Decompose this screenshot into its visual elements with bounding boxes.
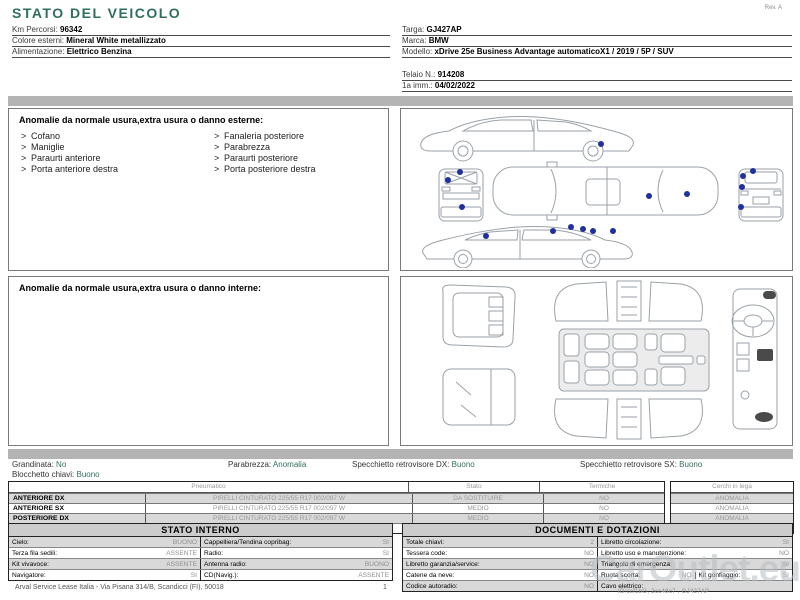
trunk-open-view <box>443 285 515 347</box>
field-value: ASSENTE <box>166 561 197 568</box>
exterior-diagram-panel <box>400 108 793 271</box>
col-termiche: Termiche <box>539 482 664 493</box>
list-item: >Maniglie <box>21 142 118 153</box>
info-prima-imm-label: 1a imm.: <box>402 81 433 90</box>
field-label: Codice autoradio: <box>406 583 458 590</box>
info-telaio-value: 914208 <box>438 70 465 79</box>
summary-label: Specchietto retrovisore SX: <box>580 460 677 469</box>
tyre-position: POSTERIORE DX <box>9 514 145 523</box>
tyre-stato: DA SOSTITUIRE <box>412 494 543 503</box>
anomaly-label: Paraurti anteriore <box>31 153 101 163</box>
info-marca: Marca: BMW <box>402 36 792 47</box>
dashboard-view <box>732 289 777 429</box>
field-label: CD(Navig.): <box>204 572 238 579</box>
tyre-description: PIRELLI CINTURATO 225/55 R17 002/097 W <box>145 504 412 513</box>
info-modello-label: Modello: <box>402 47 432 56</box>
info-targa: Targa: GJ427AP <box>402 25 792 36</box>
tyre-table-header: Pneumatico Stato Termiche <box>9 482 664 493</box>
field-label: Navigatore: <box>12 572 46 579</box>
info-modello: Modello: xDrive 25e Business Advantage a… <box>402 47 792 58</box>
info-colore-value: Mineral White metallizzato <box>66 36 166 45</box>
info-alimentazione-label: Alimentazione: <box>12 47 64 56</box>
interior-anomalies-panel: Anomalie da normale usura,extra usura o … <box>8 276 389 446</box>
field-label: Cielo: <box>12 539 29 546</box>
info-prima-imm-value: 04/02/2022 <box>435 81 475 90</box>
summary-label: Grandinata: <box>12 460 54 469</box>
info-km-label: Km Percorsi: <box>12 25 58 34</box>
table-row: Totale chiavi:2 Libretto circolazione:SI <box>403 537 792 547</box>
field-label: Kit vivavoce: <box>12 561 49 568</box>
summary-value: No <box>56 460 66 469</box>
stato-interno-title: STATO INTERNO <box>9 524 392 537</box>
info-colore-label: Colore esterni: <box>12 36 64 45</box>
field-value: SI <box>783 539 789 546</box>
list-item: >Fanaleria posteriore <box>214 131 316 142</box>
summary-label: Specchietto retrovisore DX: <box>352 460 449 469</box>
table-row: Kit vivavoce:ASSENTE Antenna radio:BUONO <box>9 558 392 569</box>
summary-value: Anomalia <box>273 460 306 469</box>
cabin-top-view <box>555 281 709 439</box>
field-label: Libretto garanzia/service: <box>406 561 480 568</box>
info-targa-label: Targa: <box>402 25 424 34</box>
table-row: Terza fila sedili:ASSENTE Radio:SI <box>9 547 392 558</box>
page-title: STATO DEL VEICOLO <box>12 5 181 21</box>
exterior-anomalies-heading: Anomalie da normale usura,extra usura o … <box>19 115 388 125</box>
info-prima-imm: 1a imm.: 04/02/2022 <box>402 81 792 92</box>
field-value: SI <box>383 550 389 557</box>
anomaly-label: Porta anteriore destra <box>31 164 118 174</box>
tyre-position: ANTERIORE DX <box>9 494 145 503</box>
summary-parabrezza: Parabrezza: Anomalia <box>228 460 306 469</box>
field-label: Totale chiavi: <box>406 539 444 546</box>
summary-grandinata: Grandinata: No <box>12 460 66 469</box>
car-side-top-view <box>421 117 634 161</box>
wheel-row: ANOMALIA <box>671 513 793 523</box>
info-telaio: Telaio N.: 914208 <box>402 70 792 81</box>
tyre-row: ANTERIORE DX PIRELLI CINTURATO 225/55 R1… <box>9 493 664 503</box>
summary-value: Buono <box>77 470 100 479</box>
info-alimentazione: Alimentazione: Elettrico Benzina <box>12 47 390 58</box>
col-pneumatico: Pneumatico <box>9 482 408 493</box>
list-item: >Paraurti anteriore <box>21 153 118 164</box>
table-row: Cielo:BUONO Cappelliera/Tendina copribag… <box>9 537 392 547</box>
col-cerchi: Cerchi in lega <box>671 482 793 493</box>
anomaly-label: Paraurti posteriore <box>224 153 298 163</box>
field-label: Terza fila sedili: <box>12 550 57 557</box>
summary-value: Buono <box>679 460 702 469</box>
list-item: >Porta anteriore destra <box>21 164 118 175</box>
field-label: Cappelliera/Tendina copribag: <box>204 539 291 546</box>
field-value: BUONO <box>365 561 389 568</box>
field-label: Radio: <box>204 550 223 557</box>
summary-specchietto-sx: Specchietto retrovisore SX: Buono <box>580 460 702 469</box>
summary-blocchetto: Blocchetto chiavi: Buono <box>12 470 100 479</box>
list-item: >Porta posteriore destra <box>214 164 316 175</box>
field-label: Catene da neve: <box>406 572 454 579</box>
section-divider-bar <box>8 449 793 459</box>
list-item: >Cofano <box>21 131 118 142</box>
section-divider-bar <box>8 96 793 106</box>
exterior-damage-diagram <box>401 109 790 268</box>
wheel-condition: ANOMALIA <box>671 504 793 513</box>
car-front-view <box>439 169 483 221</box>
car-top-view <box>493 162 718 220</box>
tyre-row: POSTERIORE DX PIRELLI CINTURATO 225/55 R… <box>9 513 664 523</box>
summary-label: Blocchetto chiavi: <box>12 470 74 479</box>
tyre-row: ANTERIORE SX PIRELLI CINTURATO 225/55 R1… <box>9 503 664 513</box>
stato-interno-table: STATO INTERNO Cielo:BUONO Cappelliera/Te… <box>8 523 393 581</box>
anomaly-label: Parabrezza <box>224 142 270 152</box>
wheel-row: ANOMALIA <box>671 503 793 513</box>
field-value: SI <box>191 572 197 579</box>
wheel-condition: ANOMALIA <box>671 514 793 523</box>
interior-diagram-panel <box>400 276 793 446</box>
page-number: 1 <box>383 584 387 591</box>
table-row: Navigatore:SI CD(Navig.):ASSENTE <box>9 569 392 580</box>
tyre-description: PIRELLI CINTURATO 225/55 R17 002/097 W <box>145 514 412 523</box>
list-marker: > <box>214 164 224 175</box>
list-item: >Paraurti posteriore <box>214 153 316 164</box>
car-side-bottom-view <box>423 227 633 268</box>
document-id: ID:ccf1bG, 2cc48c7 , GJ427AP <box>618 589 709 595</box>
info-marca-value: BMW <box>429 36 449 45</box>
anomaly-label: Porta posteriore destra <box>224 164 316 174</box>
field-label: Tessera code: <box>406 550 447 557</box>
tyre-termiche: NO <box>543 504 664 513</box>
field-value: ASSENTE <box>358 572 389 579</box>
tyre-position: ANTERIORE SX <box>9 504 145 513</box>
field-label: Libretto circolazione: <box>601 539 661 546</box>
tyre-stato: MEDIO <box>412 514 543 523</box>
col-stato: Stato <box>408 482 539 493</box>
anomaly-label: Fanaleria posteriore <box>224 131 304 141</box>
wheels-table-header: Cerchi in lega <box>671 482 793 493</box>
info-km: Km Percorsi: 96342 <box>12 25 390 36</box>
list-marker: > <box>21 131 31 142</box>
tyre-description: PIRELLI CINTURATO 225/55 R17 002/097 W <box>145 494 412 503</box>
tyre-termiche: NO <box>543 514 664 523</box>
vehicle-report-page: STATO DEL VEICOLO Rev. A Km Percorsi: 96… <box>0 0 800 600</box>
list-marker: > <box>21 164 31 175</box>
summary-specchietto-dx: Specchietto retrovisore DX: Buono <box>352 460 475 469</box>
info-alimentazione-value: Elettrico Benzina <box>67 47 132 56</box>
field-value: SI <box>383 539 389 546</box>
anomaly-label: Maniglie <box>31 142 65 152</box>
list-marker: > <box>21 142 31 153</box>
list-item: >Parabrezza <box>214 142 316 153</box>
field-label: Antenna radio: <box>204 561 247 568</box>
footer-address: Arval Service Lease Italia - Via Pisana … <box>15 584 224 591</box>
info-targa-value: GJ427AP <box>426 25 461 34</box>
summary-label: Parabrezza: <box>228 460 271 469</box>
exterior-anomalies-list-left: >Cofano >Maniglie >Paraurti anteriore >P… <box>21 131 118 175</box>
field-value: BUONO <box>173 539 197 546</box>
info-telaio-label: Telaio N.: <box>402 70 435 79</box>
trunk-closed-view <box>443 369 515 425</box>
interior-anomalies-heading: Anomalie da normale usura,extra usura o … <box>19 283 388 293</box>
exterior-anomalies-panel: Anomalie da normale usura,extra usura o … <box>8 108 389 271</box>
info-modello-value: xDrive 25e Business Advantage automatico… <box>434 47 673 56</box>
info-marca-label: Marca: <box>402 36 426 45</box>
field-value: ASSENTE <box>166 550 197 557</box>
field-value: 2 <box>590 539 594 546</box>
list-marker: > <box>214 142 224 153</box>
list-marker: > <box>21 153 31 164</box>
exterior-anomalies-list-right: >Fanaleria posteriore >Parabrezza >Parau… <box>214 131 316 175</box>
anomaly-label: Cofano <box>31 131 60 141</box>
wheel-row: ANOMALIA <box>671 493 793 503</box>
revision-label: Rev. A <box>765 5 782 11</box>
summary-value: Buono <box>452 460 475 469</box>
interior-damage-diagram <box>401 277 790 443</box>
documenti-title: DOCUMENTI E DOTAZIONI <box>403 524 792 537</box>
list-marker: > <box>214 131 224 142</box>
info-km-value: 96342 <box>60 25 82 34</box>
info-colore: Colore esterni: Mineral White metallizza… <box>12 36 390 47</box>
tyre-stato: MEDIO <box>412 504 543 513</box>
watermark: CarOutlet.eu <box>590 548 800 590</box>
wheel-condition: ANOMALIA <box>671 494 793 503</box>
list-marker: > <box>214 153 224 164</box>
tyre-termiche: NO <box>543 494 664 503</box>
